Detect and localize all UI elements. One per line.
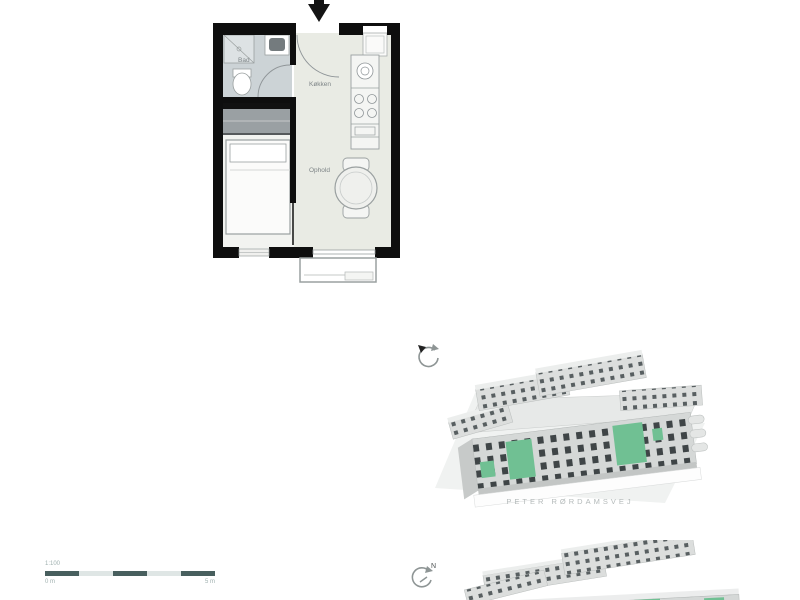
floor-plan-sheet: Bad Køkken Ophold [0, 0, 800, 600]
highlighted-unit [612, 422, 647, 465]
wardrobe [222, 103, 290, 135]
scale-segment [45, 571, 79, 576]
highlighted-unit [480, 461, 496, 479]
scale-bar: 1:100 0 m 5 m [45, 561, 215, 586]
site-rendering-upper [420, 338, 720, 513]
window [239, 249, 269, 256]
bathroom-label: Bad [238, 57, 250, 64]
balcony [300, 258, 376, 282]
scale-ratio-label: 1:100 [45, 561, 215, 568]
scale-end-label: 5 m [205, 579, 215, 586]
living-label: Ophold [309, 167, 330, 174]
street-caption: PETER RØRDAMSVEJ [430, 497, 710, 506]
balcony-door [313, 250, 375, 254]
bed [226, 140, 290, 234]
toilet [233, 69, 251, 95]
scale-segment [113, 571, 147, 576]
entrance-arrow-icon [308, 0, 330, 22]
scale-segment [147, 571, 181, 576]
kitchen-counter [351, 55, 379, 149]
kitchen-label: Køkken [309, 81, 331, 88]
scale-bar-segments [45, 571, 215, 576]
scale-start-label: 0 m [45, 579, 55, 586]
highlighted-unit [652, 428, 663, 441]
scale-segment [79, 571, 113, 576]
scale-segment [181, 571, 215, 576]
site-rendering-lower [425, 540, 770, 600]
bathroom-sink [265, 35, 289, 55]
floor-plan: Bad Køkken Ophold [205, 0, 405, 290]
fridge-niche [363, 33, 387, 56]
highlighted-unit [505, 439, 535, 480]
kitchen-sink [357, 63, 373, 79]
rooftop-blocks [464, 540, 695, 600]
